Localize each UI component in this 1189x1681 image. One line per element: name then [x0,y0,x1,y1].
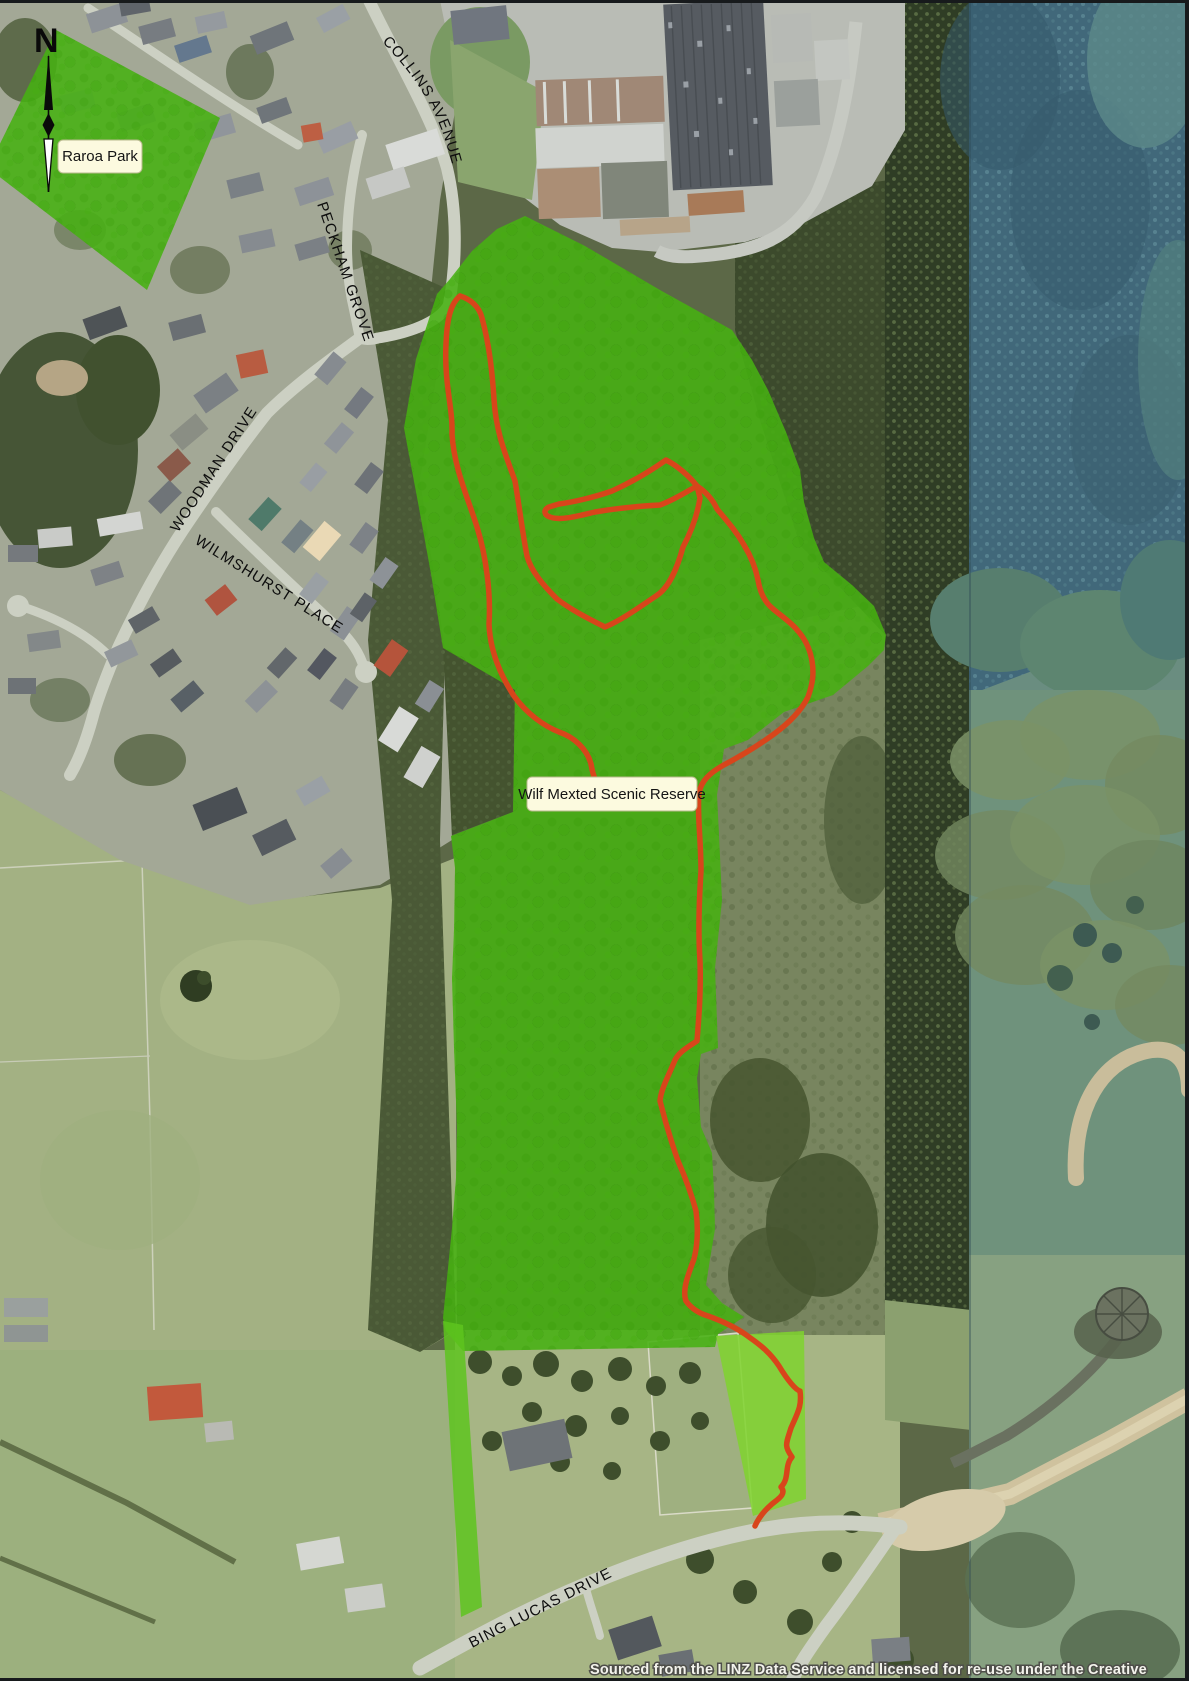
raroa-park-label: Raroa Park [58,140,142,173]
attribution-text: Sourced from the LINZ Data Service and l… [590,1662,1147,1678]
aerial-map: COLLINS AVENUE PECKHAM GROVE WOODMAN DRI… [0,0,1189,1681]
north-arrow-label: N [34,22,59,60]
plantation-forest [885,0,971,1430]
reserve-label-text: Wilf Mexted Scenic Reserve [518,786,706,803]
raroa-park-label-text: Raroa Park [62,148,138,165]
reserve-label: Wilf Mexted Scenic Reserve [518,777,706,811]
